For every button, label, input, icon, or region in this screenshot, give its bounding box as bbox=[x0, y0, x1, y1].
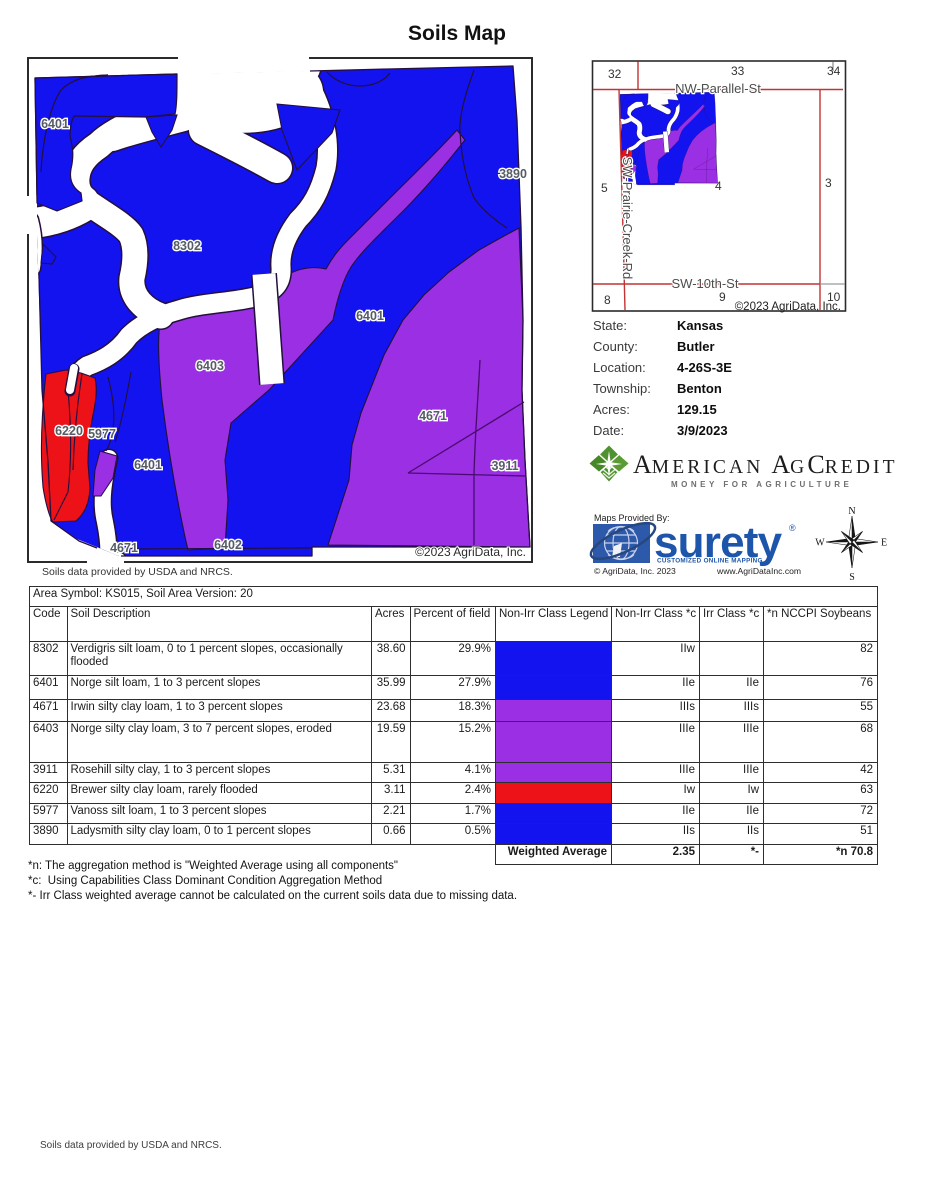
svg-text:E: E bbox=[881, 538, 887, 549]
svg-text:33: 33 bbox=[731, 64, 745, 78]
svg-text:© AgriData, Inc. 2023: © AgriData, Inc. 2023 bbox=[594, 566, 676, 576]
svg-text:N: N bbox=[848, 506, 855, 517]
svg-text:©2023 AgriData, Inc.: ©2023 AgriData, Inc. bbox=[415, 545, 526, 559]
svg-text:AMERICAN AGCREDIT: AMERICAN AGCREDIT bbox=[633, 450, 898, 479]
svg-text:34: 34 bbox=[827, 64, 841, 78]
svg-text:W: W bbox=[815, 538, 825, 549]
svg-text:www.AgriDataInc.com: www.AgriDataInc.com bbox=[716, 566, 801, 576]
svg-text:32: 32 bbox=[608, 67, 622, 81]
svg-text:MONEY FOR AGRICULTURE: MONEY FOR AGRICULTURE bbox=[671, 480, 852, 489]
svg-text:3: 3 bbox=[825, 176, 832, 190]
svg-text:SW-10th-St: SW-10th-St bbox=[672, 276, 739, 291]
svg-text:®: ® bbox=[789, 523, 796, 533]
svg-text:CUSTOMIZED ONLINE MAPPING: CUSTOMIZED ONLINE MAPPING bbox=[657, 558, 763, 565]
svg-text:©2023 AgriData, Inc.: ©2023 AgriData, Inc. bbox=[735, 301, 841, 313]
svg-text:S: S bbox=[849, 572, 855, 582]
svg-text:SW-Prairie-Creek-Rd: SW-Prairie-Creek-Rd bbox=[620, 157, 635, 280]
svg-text:4: 4 bbox=[715, 179, 722, 193]
svg-text:5: 5 bbox=[601, 181, 608, 195]
svg-text:8: 8 bbox=[604, 293, 611, 307]
svg-text:9: 9 bbox=[719, 290, 726, 304]
svg-text:NW-Parallel-St: NW-Parallel-St bbox=[675, 81, 761, 96]
